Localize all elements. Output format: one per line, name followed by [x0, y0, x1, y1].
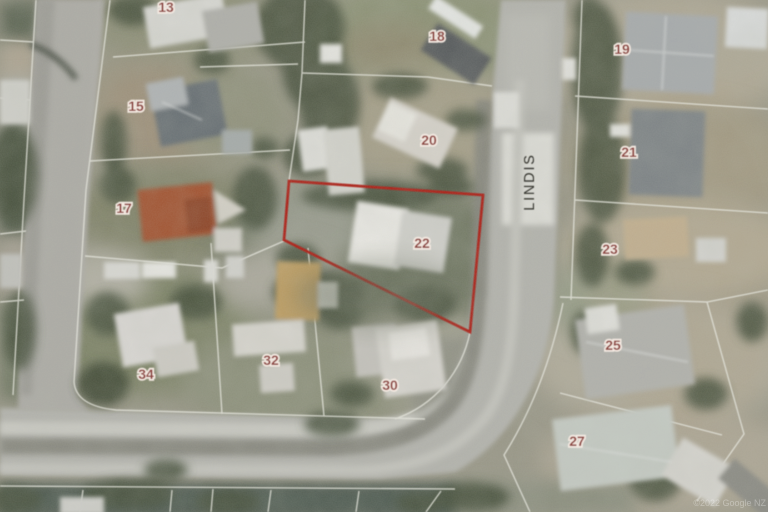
svg-text:21: 21 [621, 144, 637, 160]
svg-text:23: 23 [602, 241, 618, 257]
svg-text:17: 17 [116, 200, 132, 216]
svg-text:22: 22 [414, 235, 430, 251]
svg-text:15: 15 [128, 98, 144, 114]
svg-text:27: 27 [569, 433, 585, 449]
svg-text:30: 30 [382, 377, 398, 393]
svg-text:©2022 Google NZ: ©2022 Google NZ [693, 498, 766, 508]
svg-text:LINDIS: LINDIS [522, 153, 538, 211]
svg-text:20: 20 [421, 132, 437, 148]
svg-text:13: 13 [158, 0, 174, 15]
svg-text:34: 34 [138, 366, 154, 382]
svg-text:18: 18 [429, 28, 445, 44]
svg-text:19: 19 [614, 41, 630, 57]
svg-text:25: 25 [605, 337, 621, 353]
svg-text:32: 32 [263, 352, 279, 368]
